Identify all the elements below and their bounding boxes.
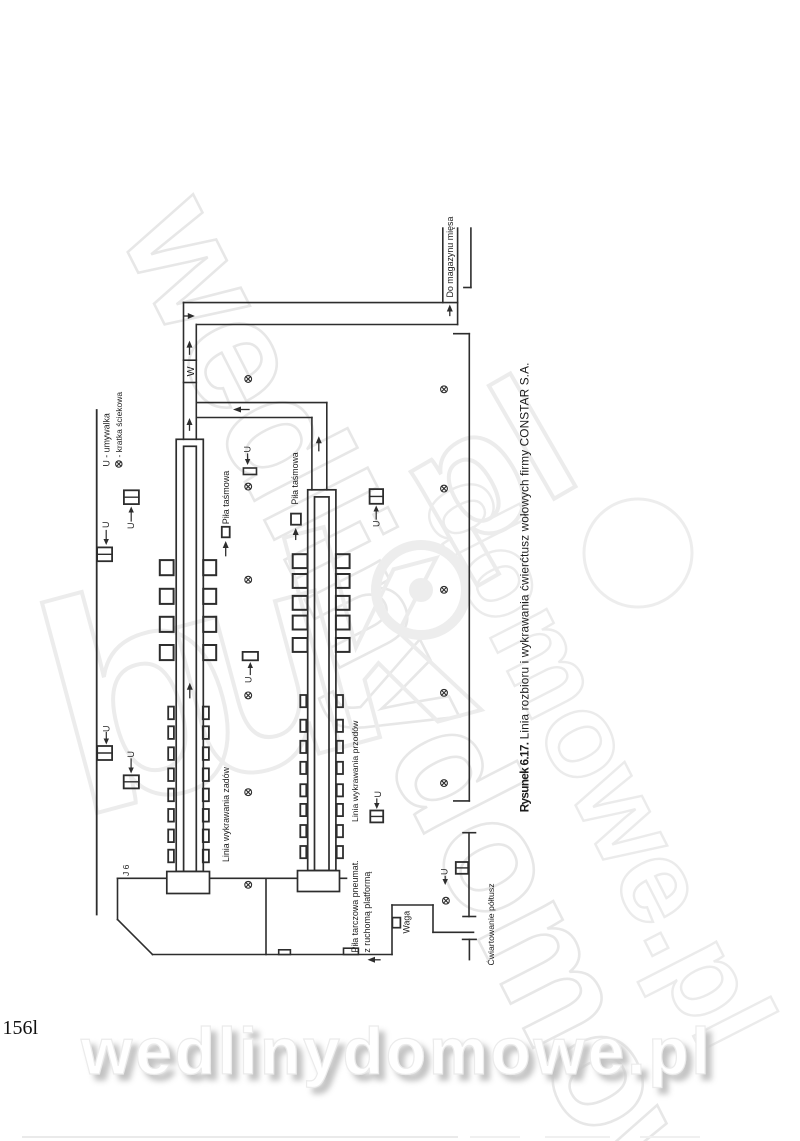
svg-text:z ruchomą platformą: z ruchomą platformą <box>362 872 372 953</box>
svg-text:wedlinydomowe.pl: wedlinydomowe.pl <box>80 1014 713 1088</box>
svg-text:U - umywalka: U - umywalka <box>102 413 112 466</box>
svg-text:Piła taśmowa: Piła taśmowa <box>221 471 231 525</box>
svg-text:Piła tarczowa pneumat.: Piła tarczowa pneumat. <box>350 860 360 952</box>
svg-text:U: U <box>243 677 253 684</box>
svg-text:Linia wykrawania przodów: Linia wykrawania przodów <box>350 720 360 822</box>
svg-text:U: U <box>126 751 136 758</box>
svg-text:U: U <box>101 726 111 733</box>
svg-text:Waga: Waga <box>402 911 412 934</box>
svg-text:J 6: J 6 <box>121 864 131 876</box>
svg-text:Piła taśmowa: Piła taśmowa <box>290 452 300 504</box>
svg-text:U: U <box>371 521 381 528</box>
svg-text:U: U <box>126 523 136 530</box>
svg-text:U: U <box>373 791 383 798</box>
svg-text:Linia wykrawania zadów: Linia wykrawania zadów <box>221 766 231 862</box>
svg-text:Do magazynu mięsa: Do magazynu mięsa <box>445 217 455 298</box>
svg-text:U: U <box>243 446 253 453</box>
svg-text:U: U <box>101 522 111 529</box>
svg-text:Ćwiartowanie półtusz: Ćwiartowanie półtusz <box>486 883 496 965</box>
svg-text:U: U <box>439 869 449 876</box>
svg-text:Rysunek 6.17. Linia rozbioru i: Rysunek 6.17. Linia rozbioru i wykrawani… <box>518 363 532 813</box>
svg-text:W: W <box>185 366 197 376</box>
svg-text:- kratka ściekowa: - kratka ściekowa <box>114 392 124 458</box>
svg-text:156l: 156l <box>3 1017 39 1039</box>
